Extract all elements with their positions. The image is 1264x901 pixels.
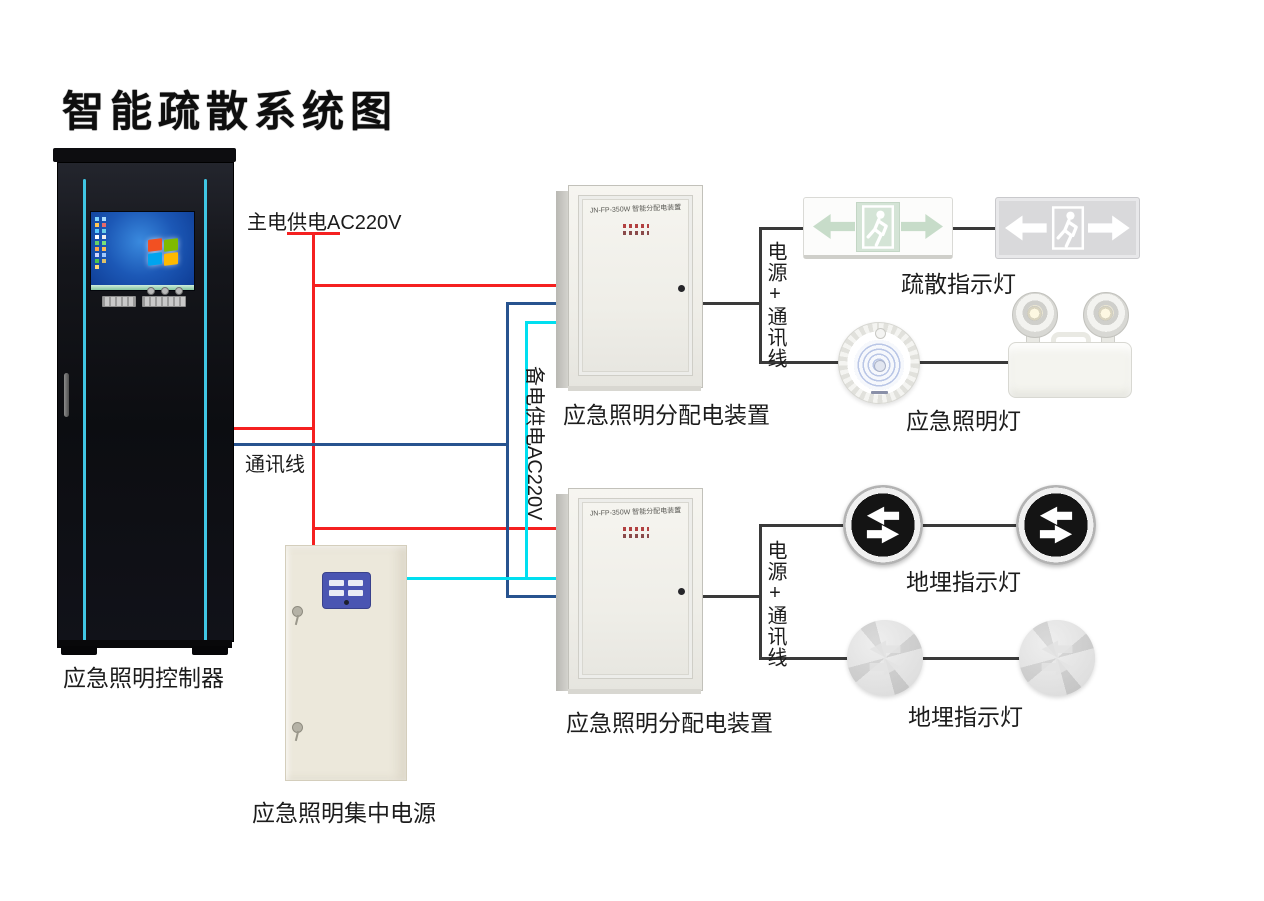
ground-light-silver-2	[1019, 620, 1095, 696]
distbox-front-door: JN-FP-350W 智能分配电装置	[568, 488, 703, 691]
windows-logo-icon	[148, 239, 178, 265]
controller-screen	[90, 211, 195, 291]
round-emergency-downlight	[838, 322, 920, 404]
running-man-icon	[859, 204, 897, 250]
distbox-bottom-edge	[568, 386, 701, 391]
double-arrow-icon	[1033, 502, 1079, 548]
backup-power-label: 备电供电AC220V	[522, 366, 551, 521]
branch-wire-to-ground-disc-1	[759, 524, 846, 527]
ground-lamp-top-label: 地埋指示灯	[906, 563, 1021, 597]
ground-light-arrow-1	[843, 485, 923, 565]
ground-lamp-bottom-label: 地埋指示灯	[908, 698, 1023, 732]
distribution-box-top: JN-FP-350W 智能分配电装置	[556, 185, 702, 392]
exit-door-plate	[1047, 204, 1089, 252]
power-cabinet-lock-top	[292, 606, 303, 617]
cabinet-foot-left	[61, 646, 97, 655]
branch-label-top: 电源+通讯线	[763, 241, 787, 369]
exit-sign-label: 疏散指示灯	[901, 265, 1016, 299]
lamp-battery-body	[1008, 342, 1132, 398]
main-power-wire-to-controller	[226, 427, 315, 430]
exit-sign-2	[995, 197, 1140, 259]
wire-ground-disc-bottom-link	[920, 657, 1022, 660]
wire-ground-disc-top-link	[920, 524, 1019, 527]
lamp-head-left	[1012, 292, 1058, 338]
comm-wire-horizontal	[226, 443, 509, 446]
lamp-brand-mark	[871, 391, 888, 394]
cabinet-body	[57, 162, 234, 642]
wire-emergency-lamp-link	[916, 361, 1010, 364]
backup-power-wire-horizontal	[400, 577, 562, 580]
branch-wire-to-exit-sign	[759, 227, 806, 230]
distribution-box-bottom-label: 应急照明分配电装置	[566, 704, 773, 738]
distbox-front-door: JN-FP-350W 智能分配电装置	[568, 185, 703, 388]
branch-wire-top-vertical	[759, 227, 762, 364]
cabinet-foot-right	[192, 646, 228, 655]
arrow-left-icon	[1005, 215, 1047, 241]
emergency-lamp-label: 应急照明灯	[906, 402, 1021, 436]
main-power-wire-vertical	[312, 232, 315, 548]
arrow-right-icon	[901, 214, 943, 240]
page-title: 智能疏散系统图	[62, 78, 398, 139]
distbox-lock-knob	[678, 588, 685, 595]
cabinet-door-handle	[64, 373, 69, 417]
lamp-test-button	[875, 328, 886, 339]
comm-wire-to-distbox-top	[506, 302, 562, 305]
distbox-lock-knob	[678, 285, 685, 292]
power-display-button	[344, 600, 349, 605]
comm-wire-vertical	[506, 302, 509, 598]
exit-sign-1	[803, 197, 953, 259]
exit-door-plate	[856, 202, 900, 252]
branch-wire-distbox-bottom-out	[698, 595, 762, 598]
control-button-strip-left	[102, 296, 136, 307]
distribution-box-bottom: JN-FP-350W 智能分配电装置	[556, 488, 702, 695]
twin-head-emergency-light	[1008, 292, 1133, 398]
control-knob-3	[175, 287, 183, 295]
distbox-door-frame	[578, 498, 693, 679]
main-power-wire-to-distbox-top	[312, 284, 562, 287]
double-arrow-icon	[863, 636, 907, 680]
desktop-icons	[95, 217, 99, 221]
comm-wire-to-distbox-bottom	[506, 595, 562, 598]
ground-light-arrow-2	[1016, 485, 1096, 565]
main-power-label: 主电供电AC220V	[247, 206, 402, 235]
cabinet-top-cap	[53, 148, 236, 162]
distribution-box-top-label: 应急照明分配电装置	[563, 396, 770, 430]
comm-line-label: 通讯线	[245, 448, 305, 477]
branch-label-bottom: 电源+通讯线	[763, 540, 787, 668]
double-arrow-icon	[860, 502, 906, 548]
central-power-label: 应急照明集中电源	[252, 794, 436, 828]
branch-wire-distbox-top-out	[698, 302, 762, 305]
arrow-right-icon	[1088, 215, 1130, 241]
arrow-left-icon	[813, 214, 855, 240]
controller-label: 应急照明控制器	[63, 659, 224, 693]
control-button-strip-right	[142, 296, 186, 307]
control-knob-1	[147, 287, 155, 295]
power-cabinet-lock-bottom	[292, 722, 303, 733]
wire-exit-sign-link	[950, 227, 997, 230]
cabinet-accent-strip-left	[83, 179, 86, 641]
evacuation-system-diagram: 智能疏散系统图 主电供电AC220V 通讯线 备电供电AC220V 电源+通讯线…	[0, 0, 1264, 901]
distbox-bottom-edge	[568, 689, 701, 694]
power-display-panel	[322, 572, 371, 609]
central-power-cabinet	[285, 545, 407, 781]
control-knob-2	[161, 287, 169, 295]
ground-light-silver-1	[847, 620, 923, 696]
running-man-icon	[1049, 205, 1087, 251]
distbox-door-frame	[578, 195, 693, 376]
branch-wire-bottom-vertical	[759, 524, 762, 660]
double-arrow-icon	[1035, 636, 1079, 680]
emergency-lighting-controller	[53, 148, 236, 654]
lamp-head-right	[1083, 292, 1129, 338]
lamp-center-hub	[874, 360, 886, 372]
cabinet-accent-strip-right	[204, 179, 207, 641]
